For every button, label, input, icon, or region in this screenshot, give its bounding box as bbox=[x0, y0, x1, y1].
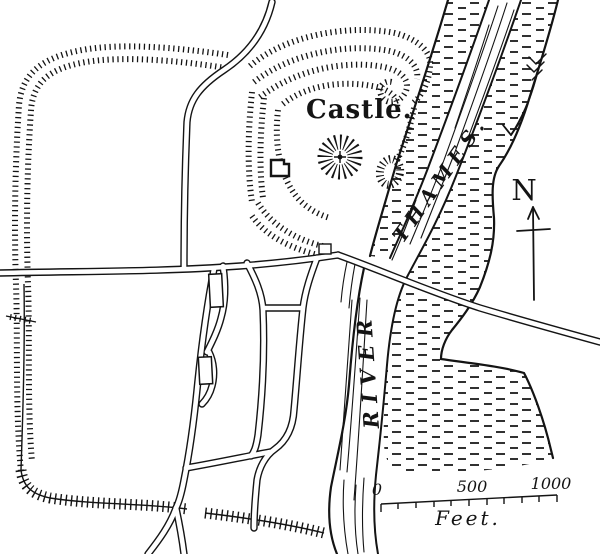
castle-label: Castle. bbox=[306, 95, 413, 125]
scale-zero-label: 0 bbox=[372, 480, 382, 499]
bridge-gate-mark bbox=[319, 244, 331, 254]
scale-max-label: 1000 bbox=[531, 474, 572, 493]
map-canvas: N 0 500 1000 Feet. Castle. THAMES. RIVER bbox=[0, 0, 600, 554]
scale-mid-label: 500 bbox=[457, 477, 488, 496]
market-block bbox=[209, 274, 224, 308]
town-block bbox=[198, 357, 212, 385]
scale-unit-label: Feet. bbox=[434, 506, 501, 530]
north-label: N bbox=[511, 173, 536, 207]
engraved-town-plan: N 0 500 1000 Feet. Castle. THAMES. RIVER bbox=[0, 0, 600, 554]
